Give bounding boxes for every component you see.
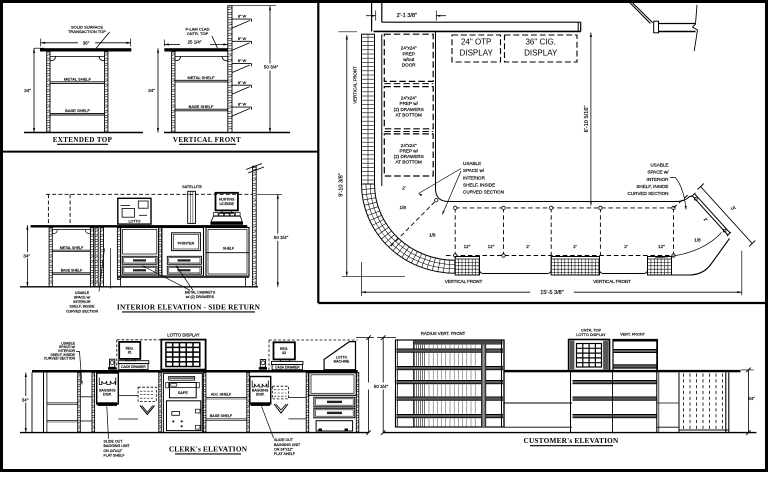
svg-text:#1: #1: [128, 350, 132, 354]
svg-text:VERT. FRONT: VERT. FRONT: [620, 333, 646, 337]
svg-text:w/out: w/out: [403, 57, 415, 62]
svg-text:8" W: 8" W: [238, 80, 247, 85]
svg-text:METAL SHELF: METAL SHELF: [64, 77, 91, 82]
svg-text:1/8: 1/8: [429, 233, 436, 238]
svg-text:LICENSE: LICENSE: [219, 202, 234, 206]
svg-text:CASH DRAWER: CASH DRAWER: [275, 365, 300, 369]
svg-text:8" W: 8" W: [238, 58, 247, 63]
svg-text:w/ (2) DRAWERS: w/ (2) DRAWERS: [186, 295, 215, 299]
svg-text:VERTICAL FRONT: VERTICAL FRONT: [593, 279, 631, 284]
svg-text:1/8: 1/8: [400, 205, 407, 210]
svg-text:SHELF, INSIDE: SHELF, INSIDE: [636, 184, 668, 189]
svg-text:CURVED SECTION: CURVED SECTION: [44, 357, 76, 361]
svg-text:RADIUS VERT. FRONT: RADIUS VERT. FRONT: [421, 331, 466, 336]
svg-text:CURVED SECTION: CURVED SECTION: [627, 191, 668, 196]
svg-text:EXTENDED TOP: EXTENDED TOP: [53, 136, 113, 144]
svg-text:SHELF, INSIDE: SHELF, INSIDE: [463, 183, 495, 188]
svg-text:BASE SHELF: BASE SHELF: [189, 104, 214, 109]
svg-text:VERTICAL FRONT: VERTICAL FRONT: [445, 279, 483, 284]
svg-text:INTERIOR ELEVATION - SIDE RETU: INTERIOR ELEVATION - SIDE RETURN: [117, 303, 261, 312]
svg-text:INTERIOR: INTERIOR: [463, 175, 486, 180]
svg-text:36" CIG.: 36" CIG.: [525, 37, 555, 46]
svg-text:METAL CABINETS: METAL CABINETS: [185, 291, 216, 295]
svg-text:34": 34": [148, 88, 155, 93]
svg-text:AT BOTTOM: AT BOTTOM: [396, 112, 422, 117]
svg-text:VERTICAL FRONT: VERTICAL FRONT: [353, 66, 358, 104]
svg-text:8" W: 8" W: [238, 14, 247, 19]
svg-text:LOTTO DISPLAY: LOTTO DISPLAY: [167, 332, 200, 337]
svg-text:(2) DRAWERS: (2) DRAWERS: [394, 154, 424, 159]
svg-text:1/8: 1/8: [694, 237, 701, 242]
svg-text:ADJ. SHELF: ADJ. SHELF: [211, 392, 232, 396]
svg-text:2': 2': [402, 186, 406, 191]
svg-text:24" OTP: 24" OTP: [461, 37, 491, 46]
svg-text:PREP w/: PREP w/: [400, 101, 419, 106]
svg-text:DISPLAY: DISPLAY: [460, 49, 494, 58]
svg-text:50 3/4": 50 3/4": [374, 384, 389, 389]
svg-text:(2) DRAWERS: (2) DRAWERS: [394, 107, 424, 112]
svg-text:BASE SHELF: BASE SHELF: [61, 269, 83, 273]
svg-text:SLIDE OUT: SLIDE OUT: [104, 440, 124, 444]
svg-text:ON 24"x12": ON 24"x12": [274, 447, 293, 451]
svg-text:24"x24": 24"x24": [401, 46, 417, 51]
svg-text:BASE SHELF: BASE SHELF: [65, 108, 90, 113]
svg-text:34": 34": [24, 88, 31, 93]
svg-text:36": 36": [83, 40, 90, 45]
svg-text:BAGGING UNIT: BAGGING UNIT: [274, 443, 301, 447]
svg-text:CASH DRAWER: CASH DRAWER: [121, 365, 146, 369]
svg-text:AT BOTTOM: AT BOTTOM: [396, 160, 422, 165]
svg-text:15'-5 3/8": 15'-5 3/8": [540, 290, 564, 296]
svg-text:8" W: 8" W: [238, 36, 247, 41]
svg-text:INTERIOR: INTERIOR: [647, 177, 670, 182]
svg-text:CLERK's ELEVATION: CLERK's ELEVATION: [169, 445, 248, 454]
svg-text:CNTR. TOP: CNTR. TOP: [581, 329, 602, 333]
svg-text:USABLE: USABLE: [463, 161, 481, 166]
svg-text:INTERIOR: INTERIOR: [73, 300, 91, 304]
svg-text:METAL SHELF: METAL SHELF: [60, 246, 84, 250]
svg-text:CURVED SECTION: CURVED SECTION: [463, 190, 504, 195]
svg-text:24"x24": 24"x24": [401, 143, 417, 148]
svg-text:CNTR. TOP: CNTR. TOP: [187, 31, 209, 36]
svg-text:SPACE w/: SPACE w/: [463, 168, 485, 173]
svg-text:LOTTO: LOTTO: [129, 220, 141, 224]
svg-text:SPACE w/: SPACE w/: [74, 296, 91, 300]
svg-text:SLIDE OUT: SLIDE OUT: [274, 438, 294, 442]
svg-text:2': 2': [526, 244, 530, 249]
svg-text:34": 34": [22, 397, 29, 402]
svg-text:24"x24": 24"x24": [401, 96, 417, 101]
svg-text:34": 34": [23, 253, 30, 258]
svg-text:BAGGING UNIT: BAGGING UNIT: [104, 444, 131, 448]
svg-text:DISP.: DISP.: [256, 393, 265, 397]
svg-text:CURVED SECTION: CURVED SECTION: [66, 309, 98, 313]
svg-text:LOTTO DISPLAY: LOTTO DISPLAY: [576, 333, 606, 337]
svg-text:2'-1 3/8": 2'-1 3/8": [397, 13, 417, 19]
svg-text:FLAT SHELF: FLAT SHELF: [104, 453, 126, 457]
svg-text:SHELF, INSIDE: SHELF, INSIDE: [69, 305, 95, 309]
svg-text:50 3/4": 50 3/4": [274, 235, 289, 240]
svg-text:2': 2': [624, 244, 628, 249]
svg-text:USABLE: USABLE: [650, 162, 668, 167]
svg-text:6'-10 5/16": 6'-10 5/16": [584, 106, 590, 133]
svg-text:DISP.: DISP.: [103, 393, 112, 397]
svg-text:DISPLAY: DISPLAY: [524, 49, 558, 58]
svg-text:CUSTOMER's ELEVATION: CUSTOMER's ELEVATION: [523, 436, 619, 445]
svg-text:#2: #2: [282, 351, 286, 355]
svg-text:12": 12": [464, 244, 471, 249]
svg-text:METAL SHELF: METAL SHELF: [188, 75, 215, 80]
svg-text:SATELLITE: SATELLITE: [182, 185, 202, 189]
svg-text:VERTICAL FRONT: VERTICAL FRONT: [173, 136, 241, 144]
svg-text:9'-10 3/8": 9'-10 3/8": [339, 173, 345, 197]
svg-text:50 3/4": 50 3/4": [264, 65, 279, 70]
svg-text:TRANSACTION TOP: TRANSACTION TOP: [68, 29, 106, 34]
svg-text:PREP: PREP: [402, 51, 415, 56]
svg-text:USABLE: USABLE: [75, 291, 90, 295]
svg-text:SPACE w/: SPACE w/: [647, 170, 669, 175]
svg-text:PREP w/: PREP w/: [400, 148, 419, 153]
svg-text:25 1/4": 25 1/4": [188, 40, 202, 45]
svg-text:MACHINE: MACHINE: [334, 360, 350, 364]
svg-text:FLAT SHELF: FLAT SHELF: [274, 452, 296, 456]
svg-text:ON 24"x12": ON 24"x12": [104, 449, 123, 453]
svg-text:12": 12": [488, 244, 495, 249]
svg-text:SHELF: SHELF: [223, 247, 234, 251]
svg-text:2': 2': [573, 244, 577, 249]
svg-text:34": 34": [748, 396, 755, 401]
svg-text:SAFE: SAFE: [178, 390, 189, 395]
svg-text:12": 12": [658, 244, 665, 249]
svg-text:DOOR: DOOR: [402, 63, 416, 68]
svg-text:BASE SHELF: BASE SHELF: [210, 414, 233, 418]
svg-text:PRINTER: PRINTER: [178, 242, 195, 246]
svg-text:8" W: 8" W: [238, 102, 247, 107]
